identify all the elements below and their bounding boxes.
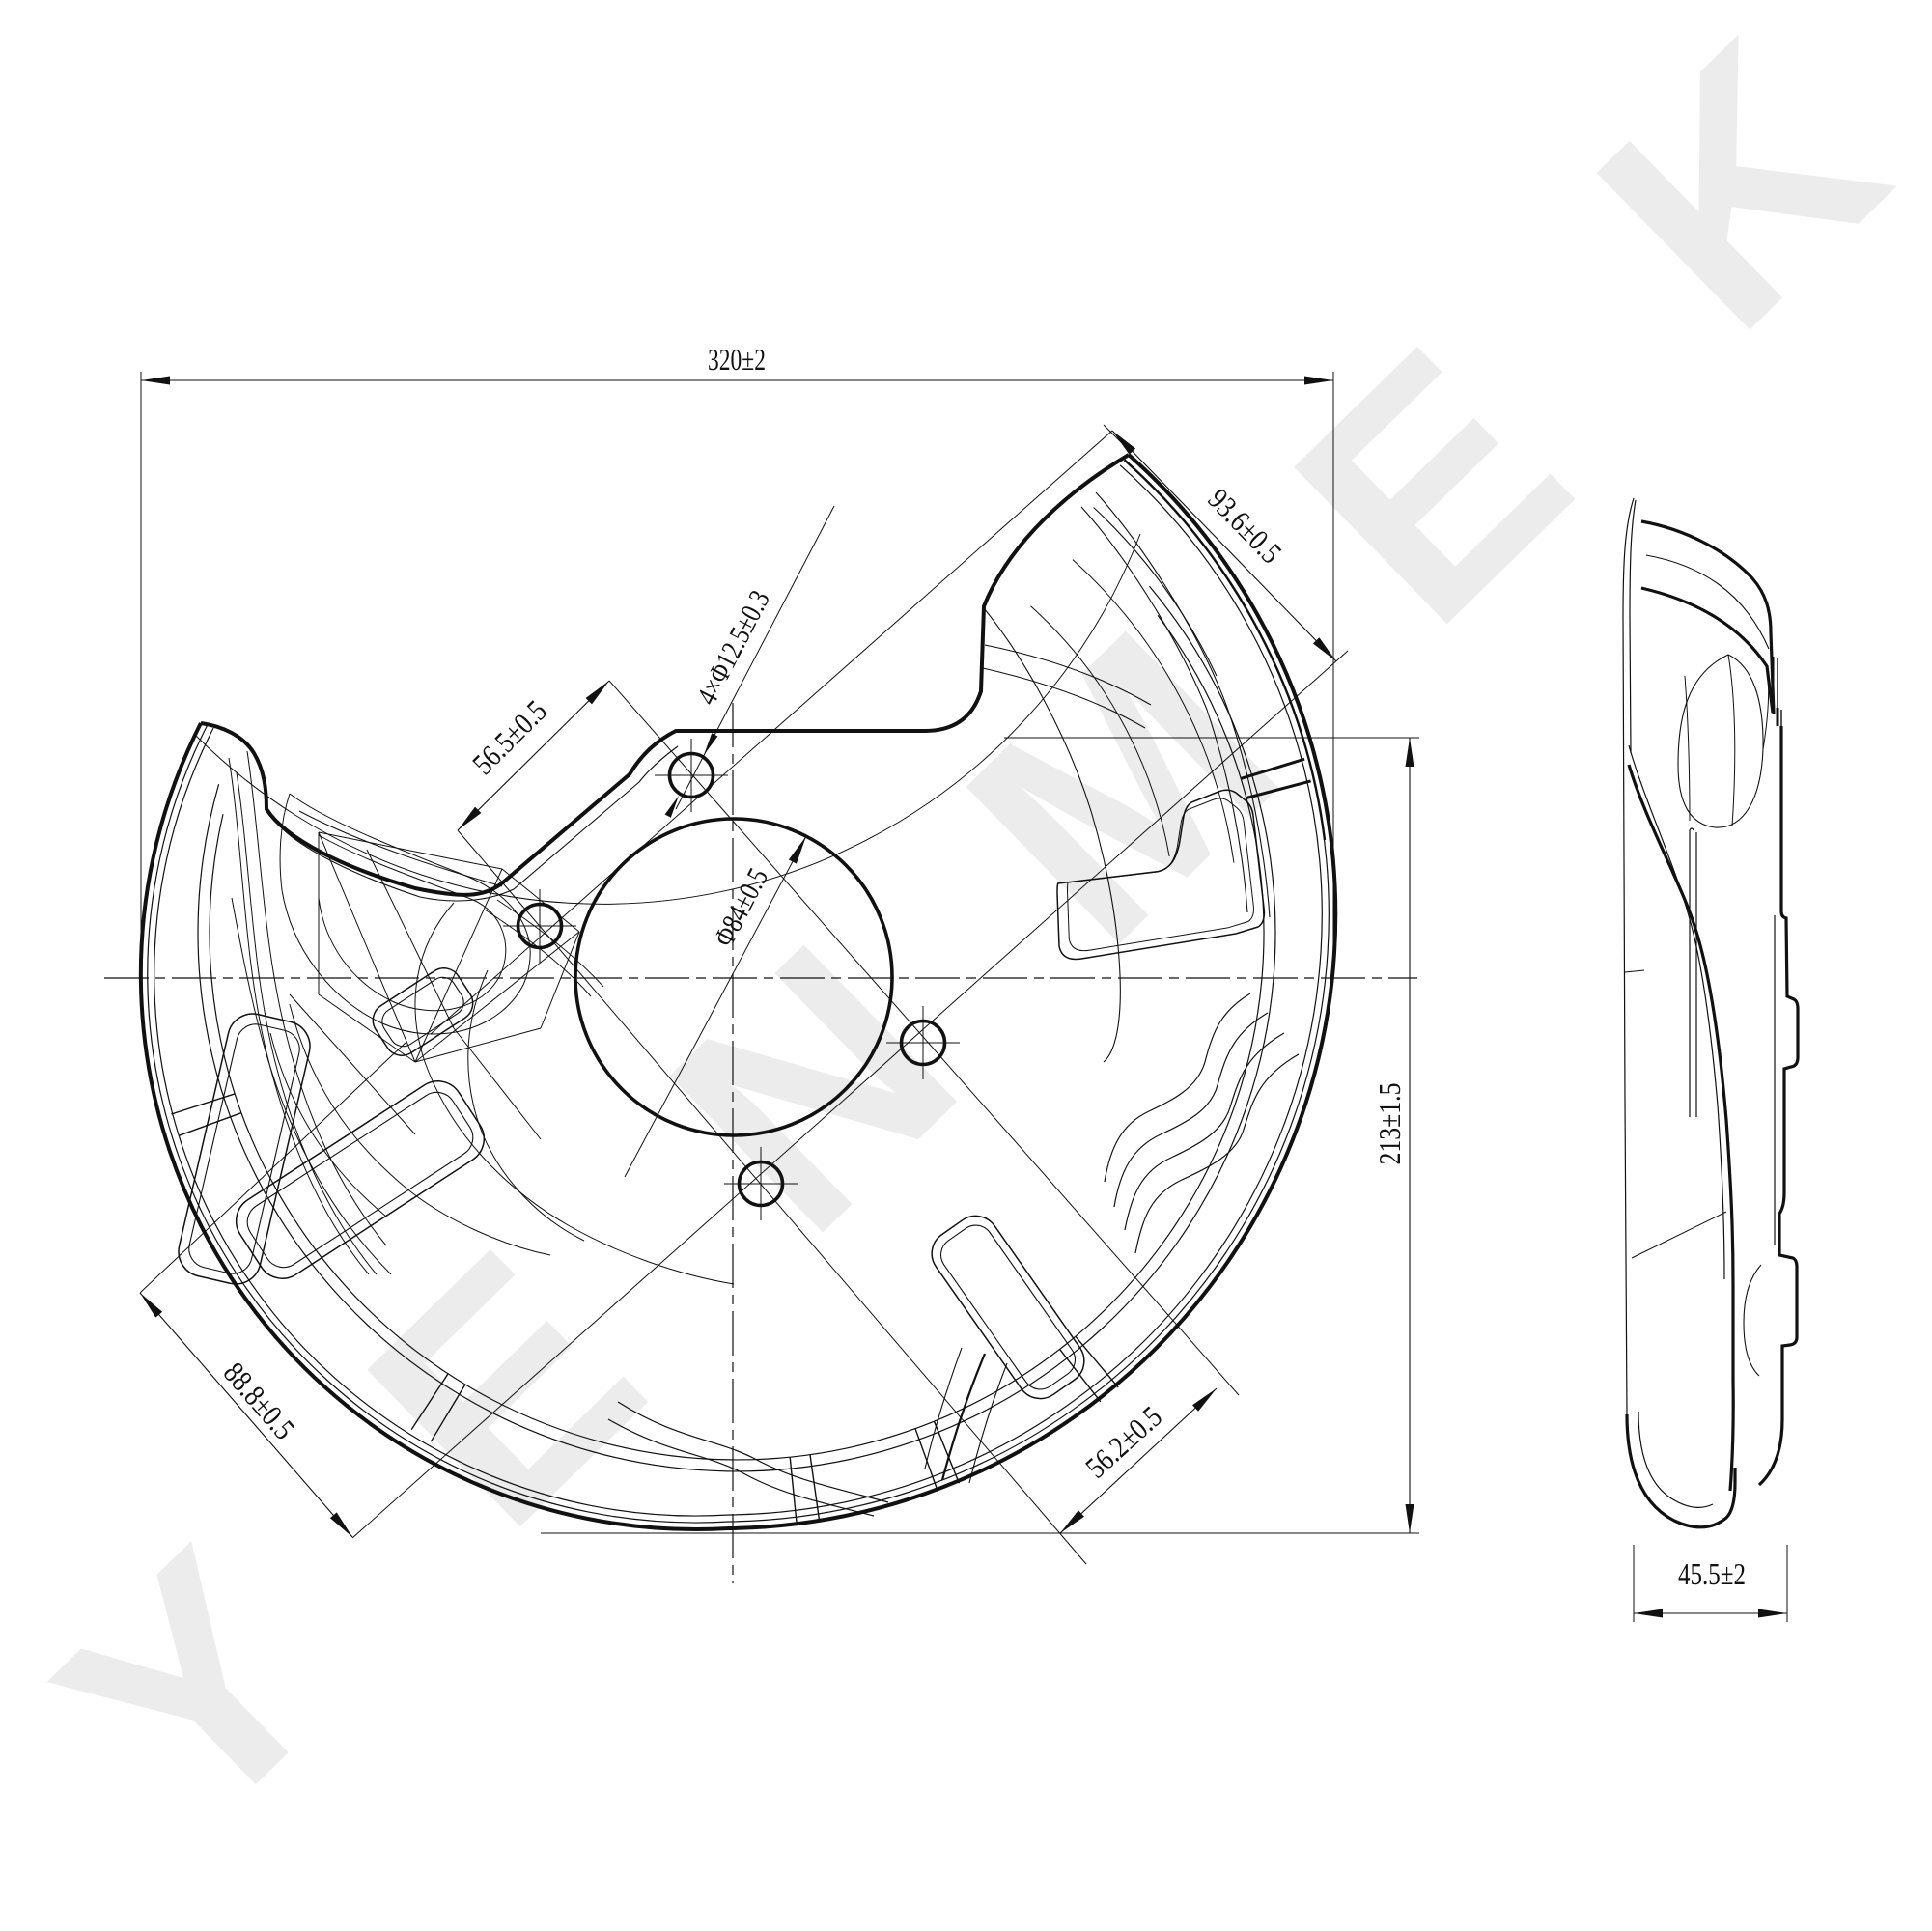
svg-text:E: E — [1230, 284, 1631, 687]
svg-text:88.8±0.5: 88.8±0.5 — [217, 1356, 301, 1445]
svg-text:45.5±2: 45.5±2 — [1678, 1557, 1746, 1591]
svg-text:56.5±0.5: 56.5±0.5 — [465, 693, 553, 781]
svg-text:4×Φ12.5±0.3: 4×Φ12.5±0.3 — [690, 585, 775, 710]
svg-text:320±2: 320±2 — [708, 343, 766, 377]
svg-text:56.2±0.5: 56.2±0.5 — [1079, 1399, 1169, 1484]
svg-text:E: E — [303, 1187, 704, 1590]
svg-text:K: K — [1533, 0, 1932, 393]
svg-text:93.6±0.5: 93.6±0.5 — [1201, 482, 1288, 570]
svg-text:213±1.5: 213±1.5 — [1373, 1083, 1407, 1165]
svg-text:Y: Y — [0, 1488, 395, 1891]
svg-text:N: N — [606, 881, 1020, 1297]
